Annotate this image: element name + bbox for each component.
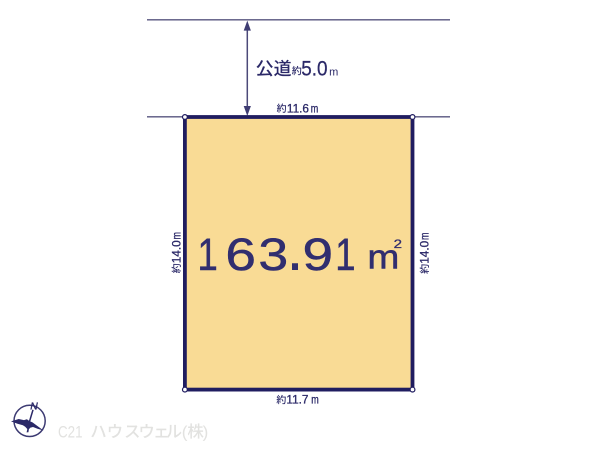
svg-text:(: ( [182,423,188,442]
svg-text:m: m [311,101,319,115]
svg-text:6: 6 [225,229,256,280]
svg-text:11.7: 11.7 [286,393,308,407]
svg-text:m: m [311,393,319,407]
svg-text:5.0: 5.0 [301,57,327,81]
svg-text:m: m [418,233,432,241]
svg-text:C21: C21 [58,424,83,442]
svg-text:2: 2 [394,237,403,251]
svg-text:1: 1 [198,229,218,280]
svg-text:3: 3 [258,229,288,280]
svg-text:.: . [286,214,304,284]
svg-text:): ) [203,423,209,442]
svg-text:m: m [329,67,338,79]
svg-text:9: 9 [303,229,334,280]
svg-text:11.6: 11.6 [287,101,310,115]
svg-text:m: m [169,232,183,240]
svg-text:N: N [30,401,38,412]
svg-text:1: 1 [335,229,355,280]
svg-text:14.0: 14.0 [169,240,183,263]
svg-text:14.0: 14.0 [418,240,432,263]
